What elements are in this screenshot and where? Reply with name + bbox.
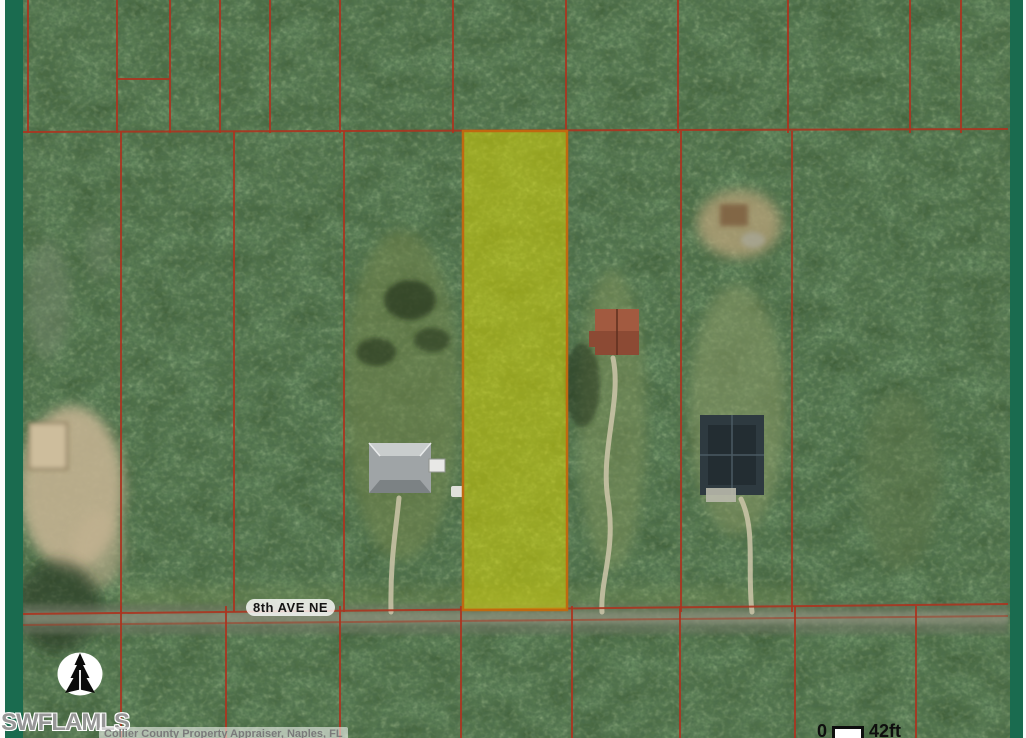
scale-start-label: 0 <box>817 721 827 738</box>
attribution-text: Collier County Property Appraiser, Naple… <box>99 727 348 738</box>
house-brown-roof <box>589 309 639 355</box>
scale-distance-label: 42ft <box>869 721 901 738</box>
street-label: 8th AVE NE <box>246 599 335 616</box>
scale-bar-box <box>832 726 864 738</box>
map-canvas <box>0 0 1026 738</box>
highlighted-parcel <box>463 131 567 610</box>
scale-bar: 0 42ft <box>817 721 901 738</box>
aerial-parcel-map: 8th AVE NE SWFLAMLS Collier County Prope… <box>0 0 1026 738</box>
house-dark-roof <box>700 415 764 502</box>
north-arrow-icon <box>58 653 103 696</box>
